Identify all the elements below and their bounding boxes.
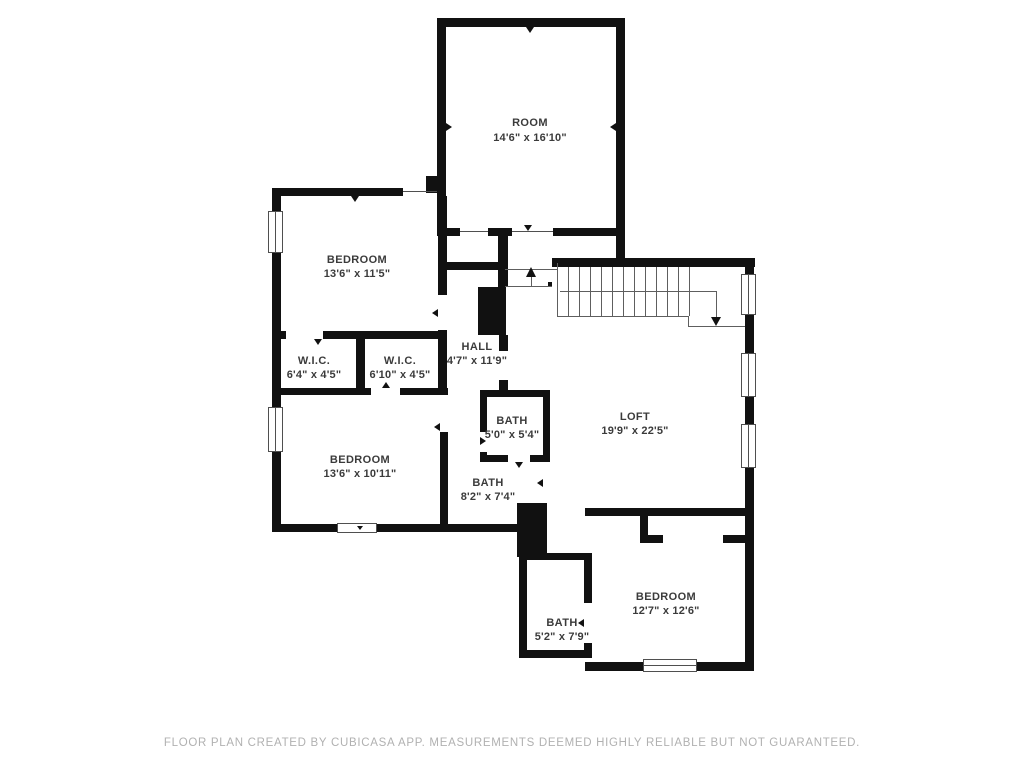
walls	[272, 18, 755, 671]
room-label-hall: HALL 4'7" x 11'9"	[447, 341, 507, 367]
room-label-wic-left: W.I.C. 6'4" x 4'5"	[287, 355, 342, 381]
hall-name: HALL	[462, 341, 493, 353]
bath-bottom-dims: 5'2" x 7'9"	[535, 631, 590, 643]
bedroom-lower-left-dims: 13'6" x 10'11"	[324, 468, 397, 480]
window	[644, 660, 697, 672]
bedroom-lower-left-name: BEDROOM	[330, 454, 390, 466]
room-label-bath-bottom: BATH 5'2" x 7'9"	[535, 617, 590, 643]
room-label-bedroom-bottom-right: BEDROOM 12'7" x 12'6"	[632, 591, 699, 617]
room-label-wic-right: W.I.C. 6'10" x 4'5"	[370, 355, 431, 381]
bath-center-dims: 8'2" x 7'4"	[461, 491, 516, 503]
window	[742, 425, 756, 468]
wic-right-name: W.I.C.	[384, 355, 416, 367]
bath-bottom-name: BATH	[546, 617, 577, 629]
staircase	[505, 263, 745, 327]
window	[742, 354, 756, 397]
plumbing-mass	[517, 503, 547, 557]
bath-small-dims: 5'0" x 5'4"	[485, 429, 540, 441]
floor-plan-canvas: ROOM 14'6" x 16'10" BEDROOM 13'6" x 11'5…	[0, 0, 1024, 768]
room-label-loft: LOFT 19'9" x 22'5"	[601, 411, 668, 437]
floor-plan-page: ROOM 14'6" x 16'10" BEDROOM 13'6" x 11'5…	[0, 0, 1024, 768]
wic-right-dims: 6'10" x 4'5"	[370, 369, 431, 381]
window	[338, 524, 377, 533]
hall-dims: 4'7" x 11'9"	[447, 355, 507, 367]
window	[269, 212, 283, 253]
room-label-bedroom-upper-left: BEDROOM 13'6" x 11'5"	[324, 254, 391, 280]
room-label-room-top: ROOM 14'6" x 16'10"	[493, 117, 567, 144]
bedroom-upper-left-name: BEDROOM	[327, 254, 387, 266]
wic-left-dims: 6'4" x 4'5"	[287, 369, 342, 381]
bath-center-name: BATH	[472, 477, 503, 489]
bath-small-name: BATH	[496, 415, 527, 427]
room-label-bedroom-lower-left: BEDROOM 13'6" x 10'11"	[324, 454, 397, 480]
room-top-dims: 14'6" x 16'10"	[493, 132, 567, 144]
bedroom-bottom-right-name: BEDROOM	[636, 591, 696, 603]
room-label-bath-small: BATH 5'0" x 5'4"	[485, 415, 540, 441]
loft-name: LOFT	[620, 411, 650, 423]
window	[269, 408, 283, 452]
wic-left-name: W.I.C.	[298, 355, 330, 367]
door-ticks	[314, 27, 616, 627]
bedroom-bottom-right-dims: 12'7" x 12'6"	[632, 605, 699, 617]
room-top-name: ROOM	[512, 117, 548, 129]
bedroom-upper-left-dims: 13'6" x 11'5"	[324, 268, 391, 280]
room-label-bath-center: BATH 8'2" x 7'4"	[461, 477, 516, 503]
chimney-mass	[478, 287, 506, 335]
loft-dims: 19'9" x 22'5"	[601, 425, 668, 437]
footer-disclaimer: FLOOR PLAN CREATED BY CUBICASA APP. MEAS…	[164, 737, 860, 749]
window	[742, 275, 756, 315]
